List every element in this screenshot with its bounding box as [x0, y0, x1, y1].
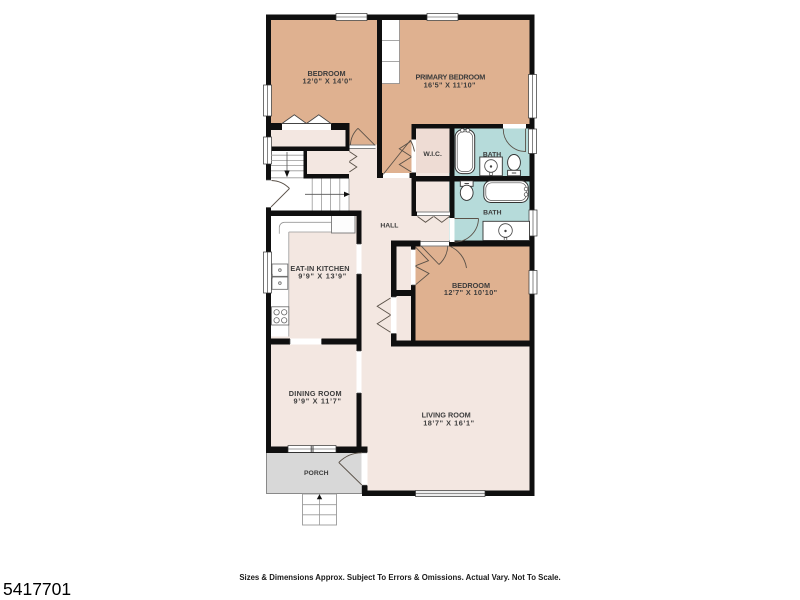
svg-text:9’9" X 13’9": 9’9" X 13’9"	[298, 271, 347, 280]
svg-text:W.I.C.: W.I.C.	[423, 151, 442, 158]
svg-text:5417701: 5417701	[3, 579, 71, 599]
svg-text:12’0" X 14’0": 12’0" X 14’0"	[302, 77, 352, 86]
svg-text:BATH: BATH	[483, 151, 501, 158]
svg-text:Sizes & Dimensions Approx. Sub: Sizes & Dimensions Approx. Subject To Er…	[239, 573, 560, 582]
svg-text:12’7" X 10’10": 12’7" X 10’10"	[444, 288, 498, 297]
svg-text:BATH: BATH	[483, 209, 501, 216]
svg-text:HALL: HALL	[380, 222, 398, 229]
svg-text:9’9" X 11’7": 9’9" X 11’7"	[294, 396, 342, 405]
svg-text:18’7" X 16’1": 18’7" X 16’1"	[423, 418, 474, 427]
svg-text:PORCH: PORCH	[304, 470, 329, 477]
svg-text:16’5" X 11’10": 16’5" X 11’10"	[424, 80, 476, 89]
